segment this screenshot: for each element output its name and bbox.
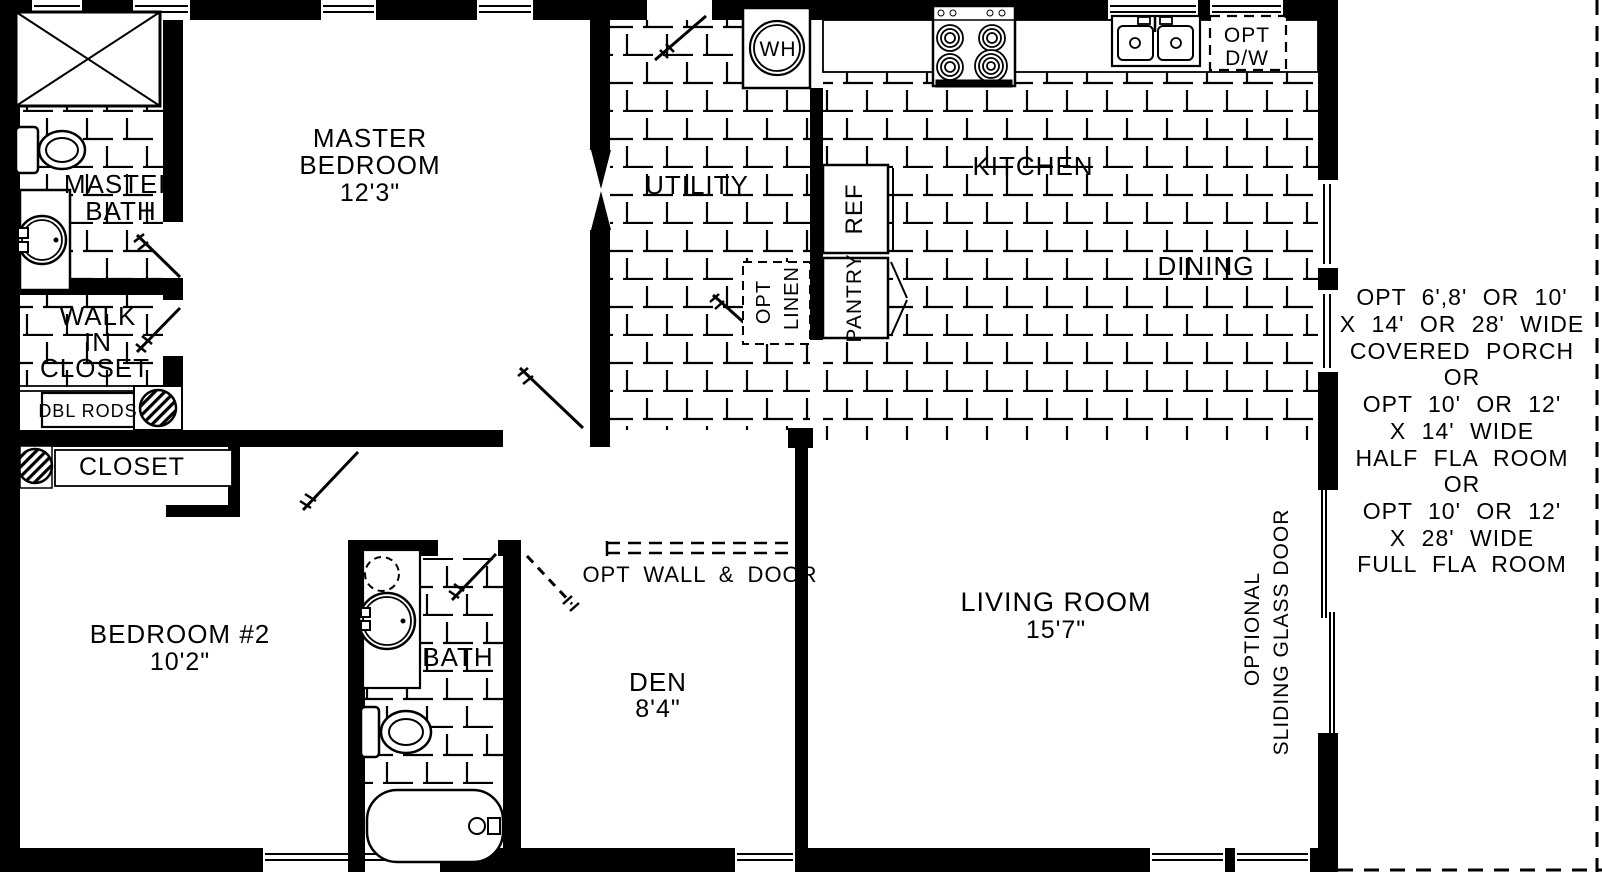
walk-in-closet-label: CLOSET — [40, 353, 150, 383]
closet2-label: CLOSET — [79, 453, 185, 481]
bedroom2-label: BEDROOM #2 — [90, 619, 271, 649]
porch-option-line: FULL FLA ROOM — [1357, 551, 1567, 577]
bath2-label: BATH — [422, 642, 493, 672]
opt-linen-label: OPT — [753, 280, 775, 324]
pantry-label: PANTRY — [843, 253, 866, 342]
bedroom2-dim: 10'2" — [150, 648, 210, 676]
master-bedroom-label: BEDROOM — [299, 150, 440, 180]
utility-label: UTILITY — [645, 170, 749, 200]
master-bath-label: BATH — [85, 196, 156, 226]
refrigerator-label: REF — [841, 184, 868, 235]
porch-option-line: OPT 6',8' OR 10' — [1356, 284, 1567, 310]
water-heater-label: WH — [760, 38, 797, 61]
range-stove-icon — [933, 6, 1015, 87]
master-sink-icon — [18, 190, 70, 290]
porch-option-line: HALF FLA ROOM — [1355, 445, 1568, 471]
dbl-rods-label: DBL RODS — [38, 401, 137, 421]
porch-option-line: OPT 10' OR 12' — [1363, 498, 1561, 524]
opt-dishwasher-label: OPT — [1224, 24, 1270, 47]
support-post-icon — [18, 446, 52, 488]
porch-option-line: X 28' WIDE — [1390, 525, 1534, 551]
floor-plan-canvas: MASTER BATH MASTER BEDROOM 12'3" WALK IN… — [0, 0, 1602, 878]
living-room-label: LIVING ROOM — [960, 587, 1151, 617]
sliding-door-label: SLIDING GLASS DOOR — [1270, 509, 1293, 756]
kitchen-sink-icon — [1112, 16, 1200, 66]
master-bedroom-dim: 12'3" — [340, 179, 400, 207]
dining-label: DINING — [1158, 251, 1255, 281]
porch-option-line: X 14' OR 28' WIDE — [1340, 311, 1584, 337]
porch-option-line: OR — [1444, 364, 1481, 390]
porch-option-line: OPT 10' OR 12' — [1363, 391, 1561, 417]
bath2-toilet-icon — [361, 707, 431, 757]
kitchen-label: KITCHEN — [972, 151, 1093, 181]
bath2-sink-icon — [359, 550, 420, 688]
opt-linen-label: LINEN — [781, 266, 803, 330]
den-dim: 8'4" — [635, 695, 680, 723]
opt-dishwasher-label: D/W — [1225, 47, 1269, 70]
master-bath-label: MASTER — [64, 169, 178, 199]
floor-plan-page: MASTER BATH MASTER BEDROOM 12'3" WALK IN… — [0, 0, 1602, 878]
porch-option-line: COVERED PORCH — [1350, 338, 1574, 364]
den-label: DEN — [629, 667, 687, 697]
living-room-dim: 15'7" — [1026, 616, 1086, 644]
master-bedroom-label: MASTER — [313, 123, 427, 153]
support-post-icon — [134, 386, 182, 430]
porch-option-line: OR — [1444, 471, 1481, 497]
porch-option-line: X 14' WIDE — [1390, 418, 1534, 444]
shower-icon — [16, 12, 160, 106]
master-toilet-icon — [16, 127, 85, 173]
opt-wall-door-label: OPT WALL & DOOR — [582, 562, 817, 587]
sliding-door-label: OPTIONAL — [1241, 572, 1264, 686]
bathtub-icon — [367, 790, 503, 862]
